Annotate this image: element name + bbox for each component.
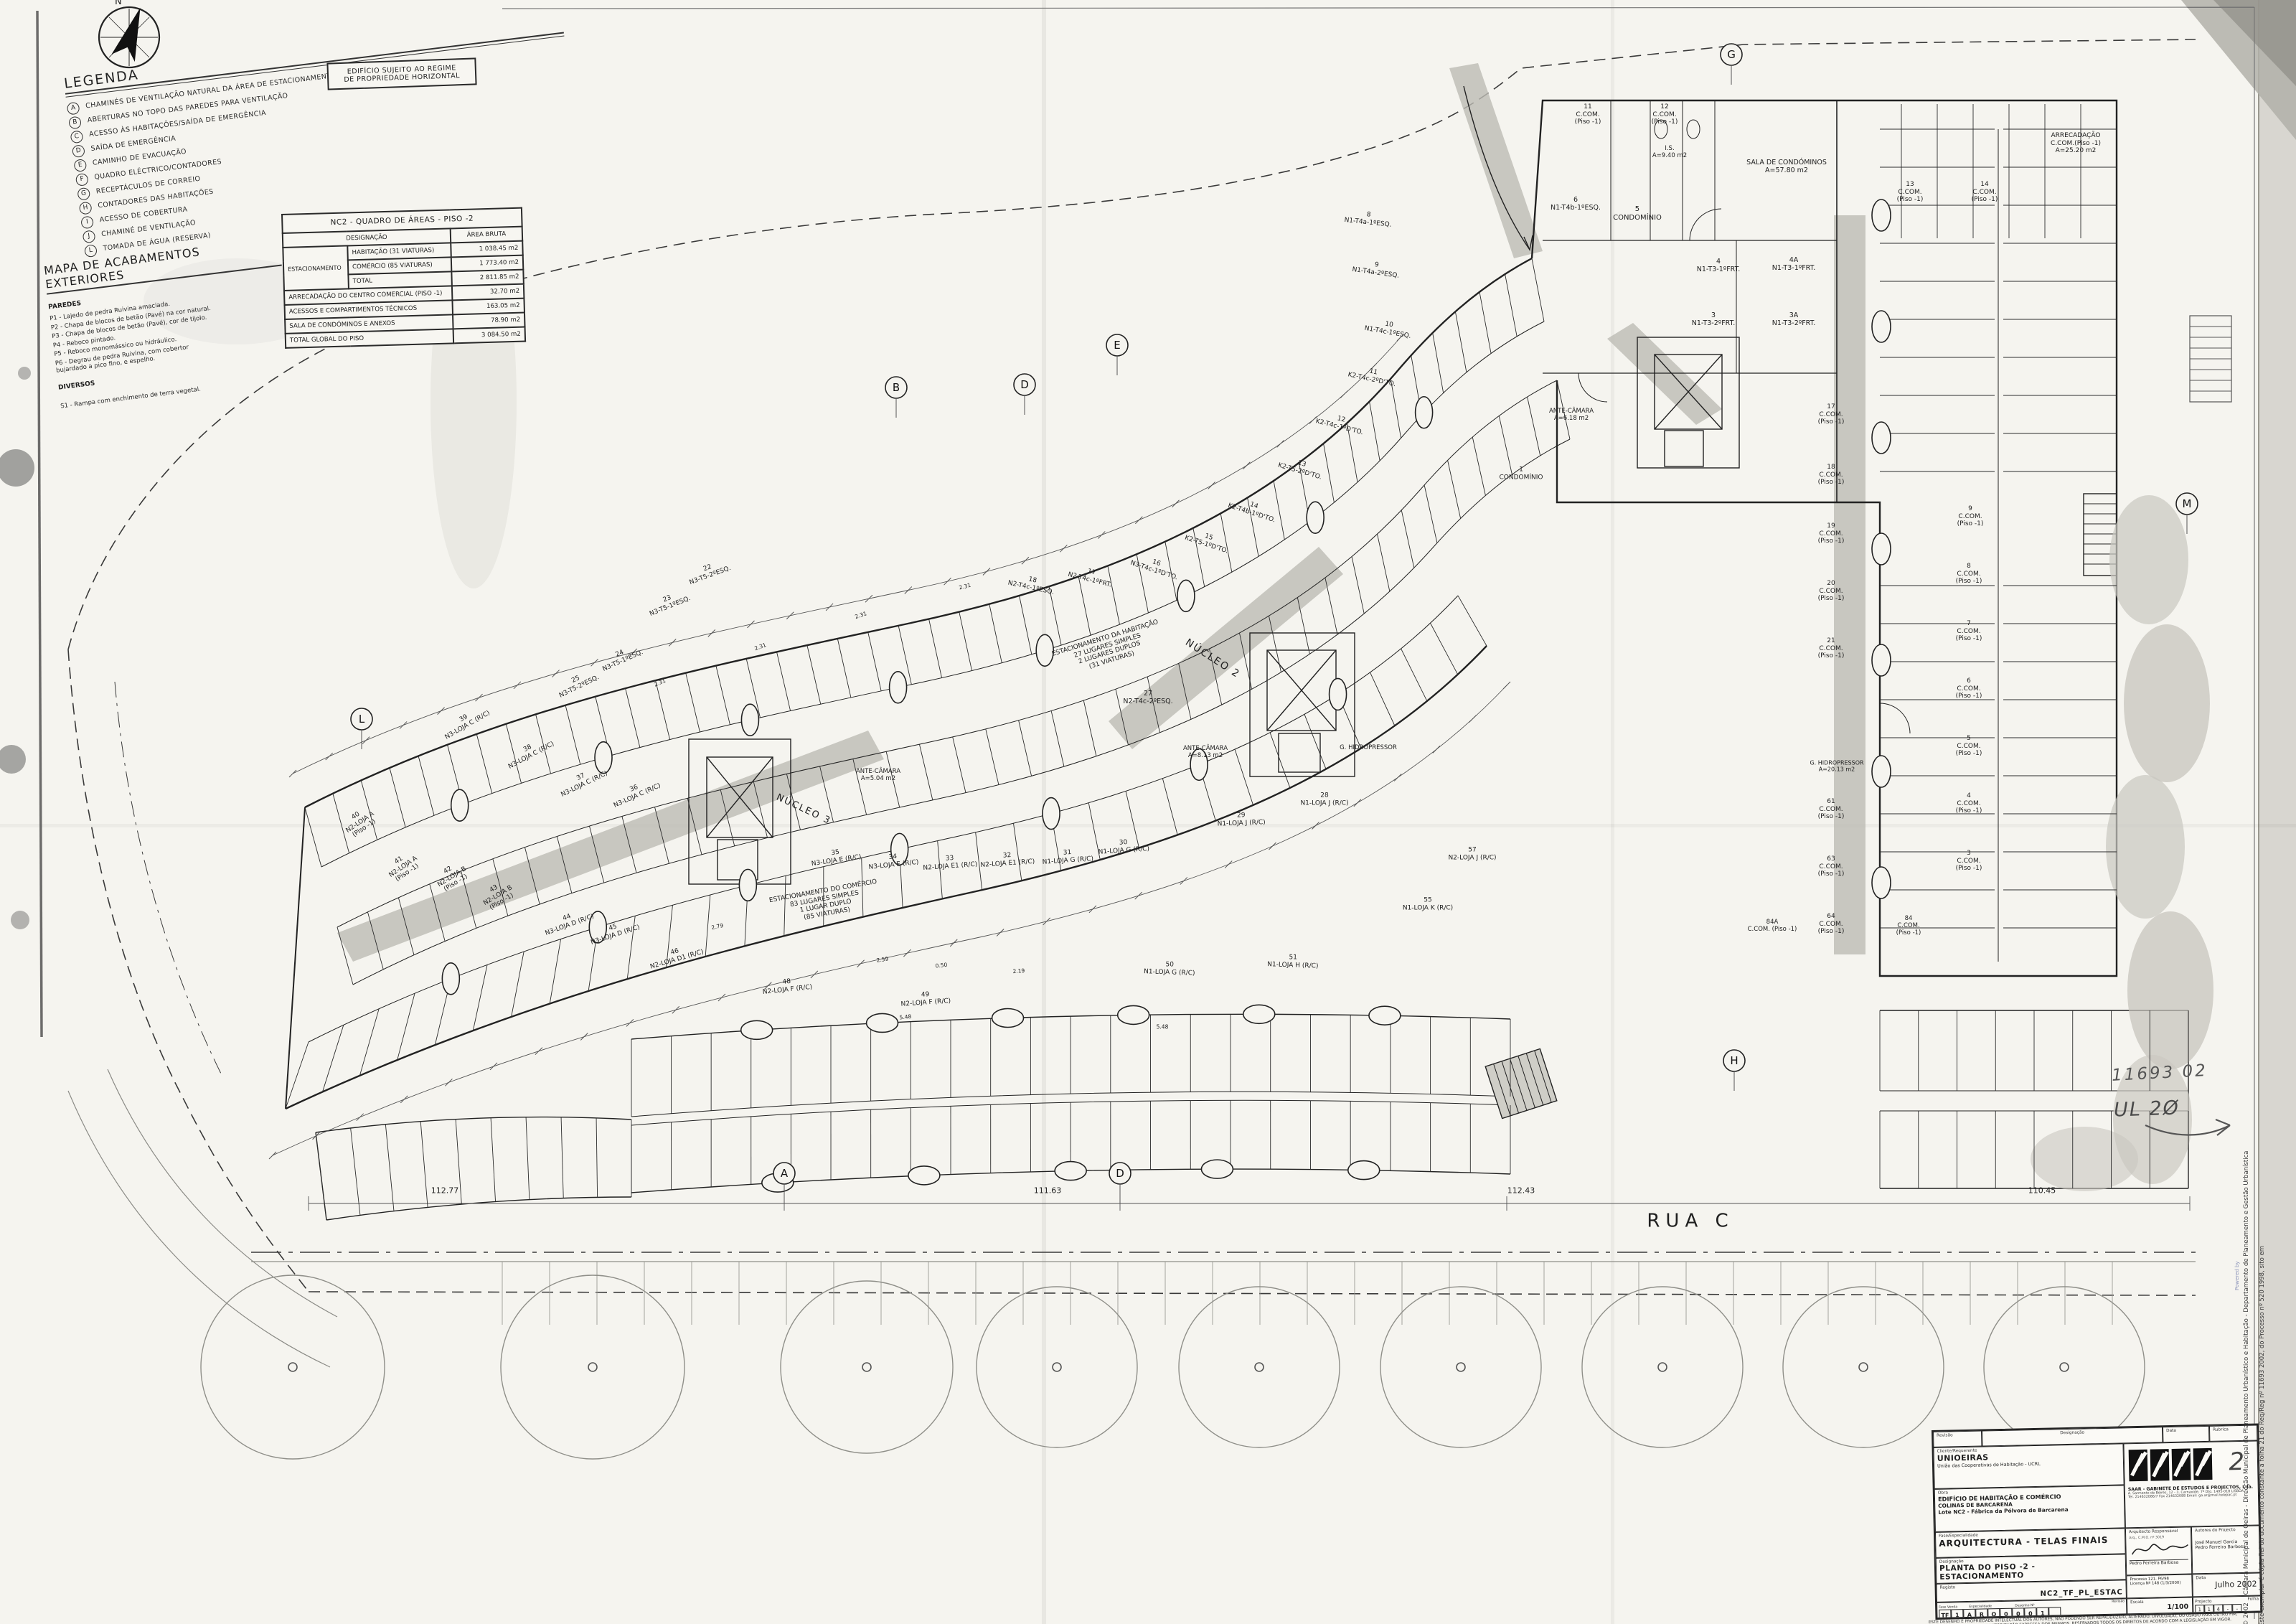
plan-label: 14 K2-T4b-1ºD'TO.	[1227, 494, 1279, 524]
drawing-sheet: GBDELMADH N ARRECADAÇÃO C.COM.(Piso -1) …	[0, 0, 2296, 1624]
areas-row-value: 163.05 m2	[452, 299, 524, 315]
drawing-code-box: R	[1975, 1608, 1987, 1618]
plan-label: 84 C.COM. (Piso -1)	[1896, 915, 1921, 937]
plan-label: 2.31	[959, 583, 971, 592]
plan-label: 4 C.COM. (Piso -1)	[1956, 792, 1982, 815]
plan-label: 8 C.COM. (Piso -1)	[1956, 563, 1982, 586]
saar-logo	[2127, 1447, 2214, 1486]
plan-label: 24 N3-T5-1ºESQ.	[598, 642, 644, 673]
drawing-code-box: 1	[2036, 1607, 2048, 1618]
plan-label: ANTE-CÂMARA A=6.18 m2	[1549, 408, 1594, 422]
plan-label: 46 N2-LOJA D1 (R/C)	[647, 941, 705, 971]
plan-label: 40 N2-LOJA A (Piso -1)	[340, 804, 380, 841]
plan-label: 9 N1-T4a-2ºESQ.	[1352, 258, 1401, 280]
areas-col-area: ÁREA BRUTA	[451, 227, 523, 243]
plan-label: 55 N1-LOJA K (R/C)	[1403, 896, 1453, 911]
plan-label: 27 N2-T4c-2ºESQ.	[1123, 690, 1172, 705]
plan-label: 14 C.COM. (Piso -1)	[1972, 181, 1998, 204]
drawing-code-box	[2048, 1607, 2061, 1618]
plan-label: 3A N1-T3-2ºFRT.	[1772, 311, 1816, 327]
plan-label: 41 N2-LOJA A (Piso -1)	[383, 848, 423, 886]
legend-key-icon: G	[77, 187, 90, 201]
areas-table: NC2 - QUADRO DE ÁREAS - PISO -2DESIGNAÇÃ…	[281, 207, 526, 349]
project-number-box: 1	[2195, 1605, 2204, 1613]
plan-label: 30 N1-LOJA G (R/C)	[1098, 837, 1150, 856]
drawing-code-box: 0	[2024, 1607, 2036, 1618]
plan-label: 48 N2-LOJA F (R/C)	[761, 976, 812, 996]
date-column-label: Data	[2166, 1428, 2206, 1433]
project-label: Projecto	[2195, 1600, 2212, 1604]
legend-key-icon: D	[72, 144, 85, 158]
plan-label: 16 N3-T4c-1ºD'TO.	[1129, 552, 1181, 581]
plan-label: 39 N3-LOJA C (R/C)	[440, 703, 491, 741]
plan-label: ANTE-CÂMARA A=8.13 m2	[1183, 745, 1228, 759]
plan-label: 5 C.COM. (Piso -1)	[1956, 735, 1982, 758]
plan-label: 5.48	[899, 1014, 912, 1022]
legend-key-icon: B	[68, 116, 82, 129]
plan-label: 22 N3-T5-2ºESQ.	[686, 558, 732, 587]
areas-row-value: 3 084.50 m2	[453, 327, 526, 344]
handwritten-ul-note: UL 2Ø	[2114, 1097, 2180, 1122]
plan-label: 49 N2-LOJA F (R/C)	[900, 990, 951, 1008]
horizontal-property-notice: EDIFÍCIO SUJEITO AO REGIME DE PROPRIEDAD…	[326, 57, 476, 90]
plan-label: 42 N2-LOJA B (Piso -1)	[432, 859, 471, 896]
plan-label: 10 N1-T4c-1ºESQ.	[1364, 317, 1413, 340]
plan-label: 33 N2-LOJA E1 (R/C)	[922, 853, 977, 872]
plan-label: 17 N2-T4c-1ºFRT.	[1067, 563, 1114, 589]
plan-label: 43 N2-LOJA B (Piso -1)	[478, 878, 517, 914]
plan-label: 57 N2-LOJA J (R/C)	[1448, 846, 1496, 861]
plan-label: I.S. A=9.40 m2	[1652, 145, 1687, 159]
legend-key-icon: L	[84, 244, 98, 258]
legend-key-icon: F	[75, 173, 89, 187]
plan-label: 63 C.COM. (Piso -1)	[1818, 855, 1845, 878]
plan-label: 18 C.COM. (Piso -1)	[1818, 464, 1845, 487]
plan-label: ARRECADAÇÃO C.COM.(Piso -1) A=25.20 m2	[2051, 132, 2101, 155]
revisao-box-label: Revisão	[2112, 1600, 2125, 1603]
legend-key-icon: I	[80, 215, 94, 229]
project-number-box: -	[2232, 1604, 2241, 1613]
plan-label: ESTACIONAMENTO DA HABITAÇÃO 27 LUGARES S…	[1051, 619, 1166, 680]
plan-label: ESTACIONAMENTO DO COMÉRCIO 83 LUGARES SI…	[768, 878, 881, 927]
plan-label: 29 N1-LOJA J (R/C)	[1217, 811, 1266, 828]
plan-label: 20 C.COM. (Piso -1)	[1818, 580, 1845, 603]
plan-label: 18 N2-T4c-1ºESQ.	[1007, 572, 1057, 596]
architect-label: Arquitecto Responsável	[2129, 1529, 2188, 1535]
plan-label: 17 C.COM. (Piso -1)	[1818, 403, 1845, 426]
legend-key-icon: C	[70, 130, 84, 144]
plan-label: 2.31	[654, 678, 667, 689]
plan-label: 2.31	[855, 611, 868, 621]
plan-label: 45 N3-LOJA D (R/C)	[588, 916, 641, 947]
plan-label: 112.43	[1507, 1187, 1535, 1196]
plan-label: 15 K2-T5-1ºD'TO.	[1184, 527, 1231, 555]
file-code: NC2_TF_PL_ESTAC	[2041, 1588, 2123, 1597]
areas-row-value: 2 811.85 m2	[451, 270, 524, 286]
plan-label: 4A N1-T3-1ºFRT.	[1772, 256, 1816, 272]
plan-label: 2.59	[876, 956, 889, 964]
plan-label: 64 C.COM. (Piso -1)	[1818, 913, 1845, 936]
licence-number: Licença Nº 148 (1/3/2000)	[2130, 1581, 2188, 1587]
plan-label: 12 C.COM. (Piso -1)	[1652, 103, 1678, 126]
plan-label: 2.31	[754, 642, 768, 652]
project-number-box: 4	[2213, 1605, 2223, 1613]
project-number-box: 1	[2204, 1605, 2213, 1613]
architect-name: Pedro Ferreira Barbosa	[2130, 1559, 2188, 1567]
plan-label: 110.45	[2028, 1187, 2056, 1196]
plan-label: 6 N1-T4b-1ºESQ.	[1551, 196, 1601, 212]
plan-label: 5 CONDOMÍNIO	[1613, 205, 1662, 222]
exterior-finishes: MAPA DE ACABAMENTOS EXTERIORES PAREDES P…	[43, 235, 296, 410]
legend-key-icon: J	[83, 230, 96, 243]
areas-row-value: 78.90 m2	[453, 313, 525, 329]
plan-label: 51 N1-LOJA H (R/C)	[1267, 953, 1319, 970]
legend-key-icon: A	[67, 102, 80, 116]
plan-label: 0.50	[935, 962, 948, 970]
plan-label: 61 C.COM. (Piso -1)	[1818, 798, 1845, 821]
project-number-box: -	[2223, 1604, 2232, 1613]
plan-label: G. HIDROPRESSOR A=20.13 m2	[1810, 760, 1863, 774]
plan-label: 50 N1-LOJA G (R/C)	[1144, 960, 1195, 977]
plan-label: 3 N1-T3-2ºFRT.	[1692, 311, 1736, 327]
plan-label: 34 N3-LOJA E (R/C)	[867, 851, 919, 871]
plan-label: 9 C.COM. (Piso -1)	[1957, 505, 1984, 528]
plan-label: 12 K2-T4c-1ºD'TO.	[1314, 410, 1365, 436]
revision-column-label: Revisão	[1937, 1433, 1978, 1438]
areas-group-label: ESTACIONAMENTO	[283, 245, 349, 290]
plan-label: 1 CONDOMÍNIO	[1499, 466, 1543, 481]
plan-label: 11 K2-T4c-2ºD'TO.	[1347, 364, 1398, 389]
plan-label: NÚCLEO 3	[774, 792, 832, 827]
plan-label: NÚCLEO 2	[1183, 637, 1242, 681]
drawing-code-box: TF	[1939, 1609, 1951, 1618]
designation-column-label: Designação	[1985, 1429, 2159, 1437]
drawing-title: PLANTA DO PISO -2 - ESTACIONAMENTO	[1939, 1560, 2122, 1581]
plan-label: 13 K2-T5-2ºD'TO.	[1277, 454, 1325, 482]
plan-label: 112.77	[431, 1187, 459, 1196]
plan-label: 31 N1-LOJA G (R/C)	[1042, 848, 1094, 866]
plan-label: G. HIDROPRESSOR	[1340, 744, 1397, 751]
drawing-code-box: 0	[2012, 1607, 2024, 1618]
plan-label: 19 C.COM. (Piso -1)	[1818, 522, 1845, 545]
legend-key-icon: H	[79, 202, 93, 215]
plan-label: 4 N1-T3-1ºFRT.	[1697, 258, 1741, 273]
plan-label: 2.79	[711, 923, 724, 931]
plan-label: ANTE-CÂMARA A=5.04 m2	[856, 768, 900, 782]
plan-label: 2.19	[1012, 968, 1025, 975]
plan-label: 5.48	[1157, 1025, 1169, 1031]
drawing-code-box: Q	[1987, 1608, 2000, 1618]
areas-row-value: 32.70 m2	[452, 284, 524, 301]
plan-label: 37 N3-LOJA C (R/C)	[557, 763, 609, 799]
plan-label: 6 C.COM. (Piso -1)	[1956, 677, 1982, 700]
plan-label: 84A C.COM. (Piso -1)	[1748, 919, 1797, 933]
scale-value: 1/100	[2167, 1603, 2188, 1612]
plan-label: 36 N3-LOJA C (R/C)	[609, 775, 662, 809]
plan-label: 7 C.COM. (Piso -1)	[1956, 620, 1982, 643]
municipal-stamp-line1: © 2002 Câmara Municipal de Oeiras - Dire…	[2243, 1150, 2250, 1624]
areas-row-value: 1 773.40 m2	[451, 255, 524, 272]
plan-label: 25 N3-T5-2ºESQ.	[555, 667, 601, 700]
legend-key-icon: E	[73, 159, 87, 172]
street-name-label: RUA C	[1647, 1211, 1733, 1233]
plan-label: 3 C.COM. (Piso -1)	[1956, 850, 1982, 873]
drawing-code-box: 0	[2000, 1608, 2012, 1618]
powered-by-stamp: Powered by	[2234, 1261, 2240, 1290]
areas-row-value: 1 038.45 m2	[451, 241, 523, 258]
plan-label: 111.63	[1034, 1187, 1062, 1196]
plan-label: 13 C.COM. (Piso -1)	[1897, 181, 1924, 204]
drawing-code-box: A	[1963, 1609, 1975, 1618]
municipal-stamp-line2: Este exemplar é cópia fiel do documento …	[2259, 1246, 2266, 1624]
plan-label: 28 N1-LOJA J (R/C)	[1300, 792, 1348, 807]
plan-label: 32 N2-LOJA E1 (R/C)	[979, 850, 1035, 869]
plan-label: 35 N3-LOJA E (R/C)	[810, 846, 862, 868]
plan-label: SALA DE CONDÓMINOS A=57.80 m2	[1746, 159, 1827, 174]
drawing-code-box: 1	[1951, 1609, 1963, 1618]
plan-label: 21 C.COM. (Piso -1)	[1818, 637, 1845, 660]
plan-label: 38 N3-LOJA C (R/C)	[504, 733, 555, 771]
architect-signature	[2129, 1539, 2191, 1559]
plan-label: 8 N1-T4a-1ºESQ.	[1344, 209, 1393, 229]
plan-label: 23 N3-T5-1ºESQ.	[646, 588, 692, 618]
plan-label: 11 C.COM. (Piso -1)	[1575, 103, 1601, 126]
title-block: Revisão Designação Data Rubrica Cliente/…	[1932, 1423, 2262, 1619]
